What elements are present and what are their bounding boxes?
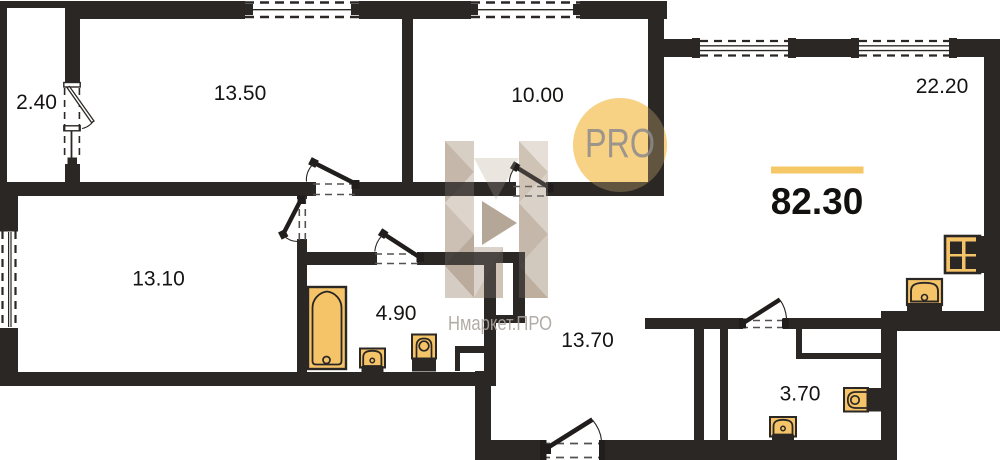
svg-text:13.70: 13.70	[561, 329, 614, 352]
svg-text:13.10: 13.10	[132, 268, 185, 291]
svg-text:2.40: 2.40	[16, 91, 57, 114]
svg-text:10.00: 10.00	[511, 84, 564, 107]
svg-text:PRO: PRO	[585, 120, 655, 166]
svg-text:Нмаркет.ПРО: Нмаркет.ПРО	[448, 313, 552, 335]
svg-text:4.90: 4.90	[376, 302, 417, 325]
svg-text:3.70: 3.70	[780, 383, 821, 406]
svg-text:13.50: 13.50	[214, 82, 267, 105]
svg-text:22.20: 22.20	[916, 75, 969, 98]
svg-text:82.30: 82.30	[771, 181, 864, 222]
